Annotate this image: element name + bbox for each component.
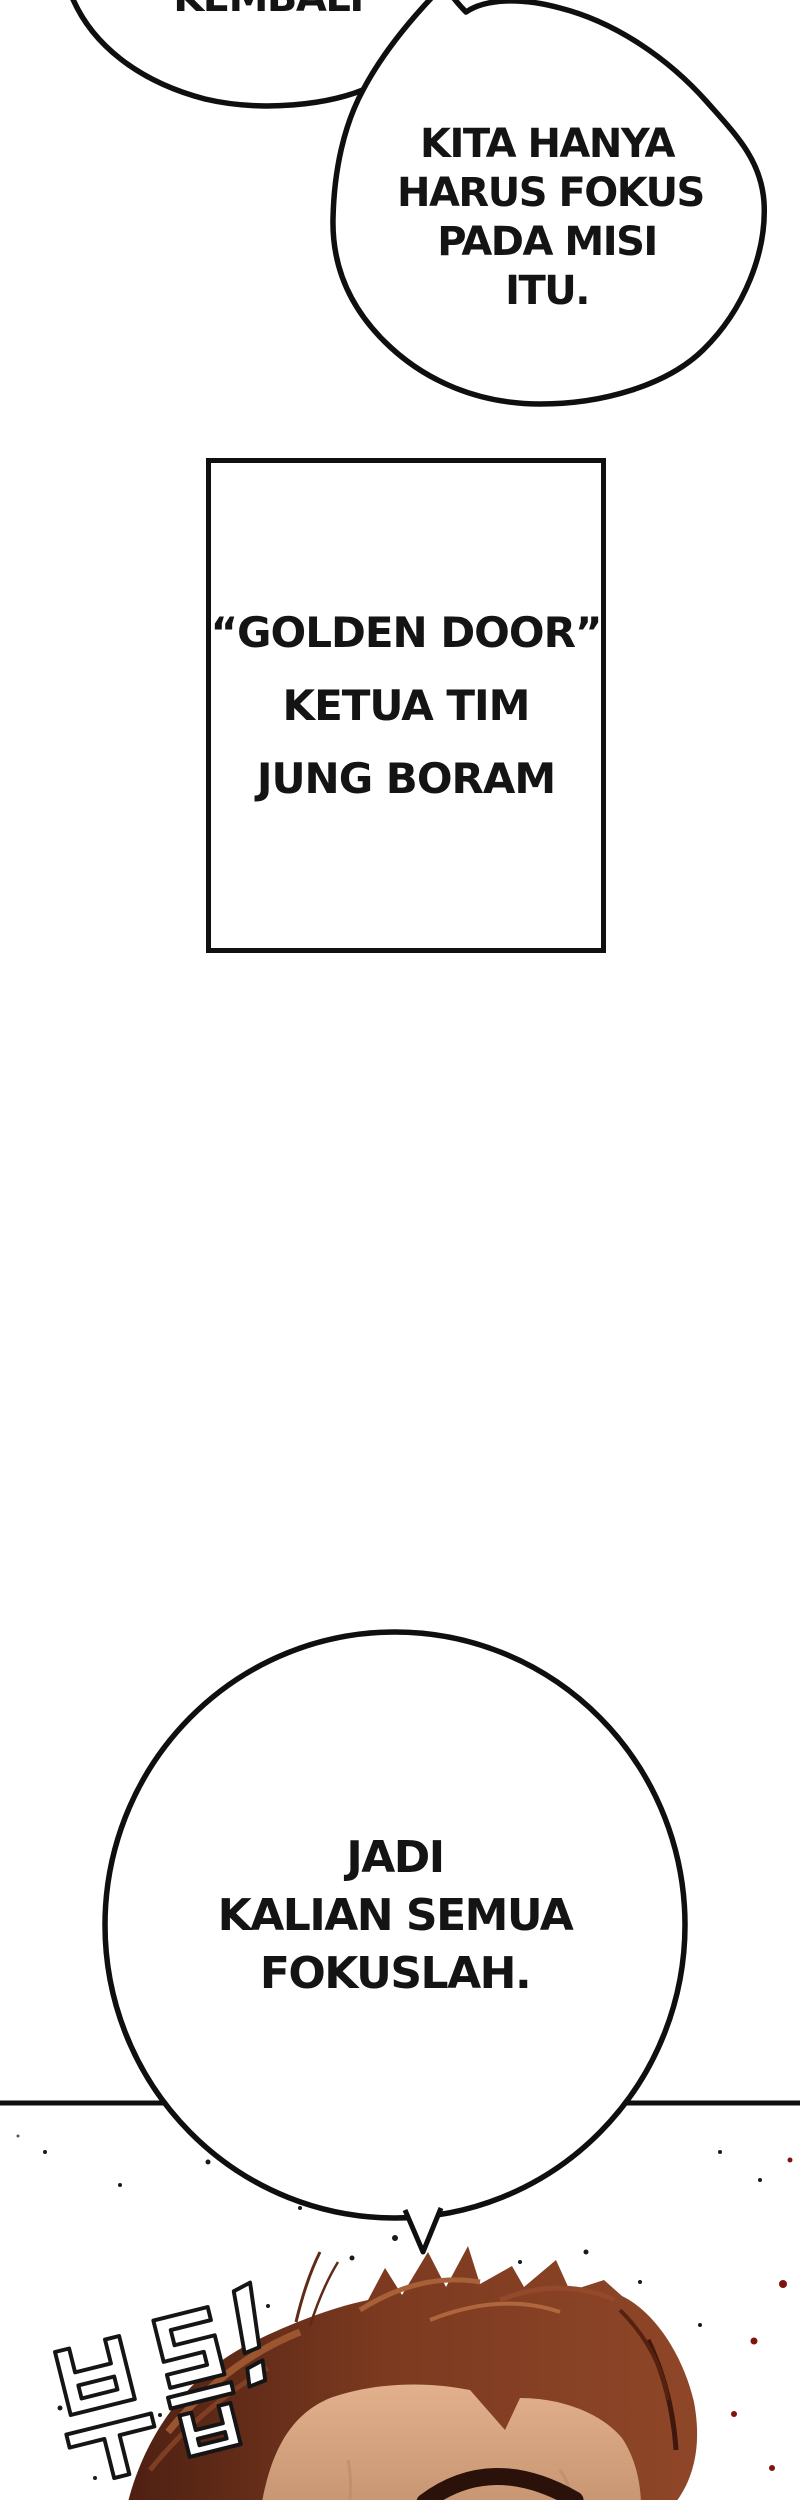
caption-line: KETUA TIM — [210, 669, 601, 742]
speech-line: JADI — [195, 1829, 595, 1887]
speech-text-partial: KEMBALI — [148, 0, 388, 23]
speech-text-focus: JADI KALIAN SEMUA FOKUSLAH. — [195, 1829, 595, 2003]
speech-line: KITA HANYA — [397, 120, 697, 169]
hair-strand — [296, 2252, 320, 2322]
speech-line: ITU. — [397, 267, 697, 316]
caption-line: JUNG BORAM — [210, 742, 601, 815]
speech-line: HARUS FOKUS — [397, 169, 697, 218]
caption-text: “GOLDEN DOOR” KETUA TIM JUNG BORAM — [210, 596, 601, 815]
speech-line: KEMBALI — [148, 0, 388, 23]
speech-line: KALIAN SEMUA — [195, 1887, 595, 1945]
caption-box: “GOLDEN DOOR” KETUA TIM JUNG BORAM — [206, 458, 606, 953]
line-art-canvas — [0, 0, 800, 2500]
speech-text-mission: KITA HANYA HARUS FOKUS PADA MISI ITU. — [397, 120, 697, 316]
speech-line: PADA MISI — [397, 218, 697, 267]
speech-bubble-tail — [405, 2208, 441, 2252]
caption-line: “GOLDEN DOOR” — [210, 596, 601, 669]
speech-line: FOKUSLAH. — [195, 1945, 595, 2003]
manhwa-page: “GOLDEN DOOR” KETUA TIM JUNG BORAM KEMBA… — [0, 0, 800, 2500]
